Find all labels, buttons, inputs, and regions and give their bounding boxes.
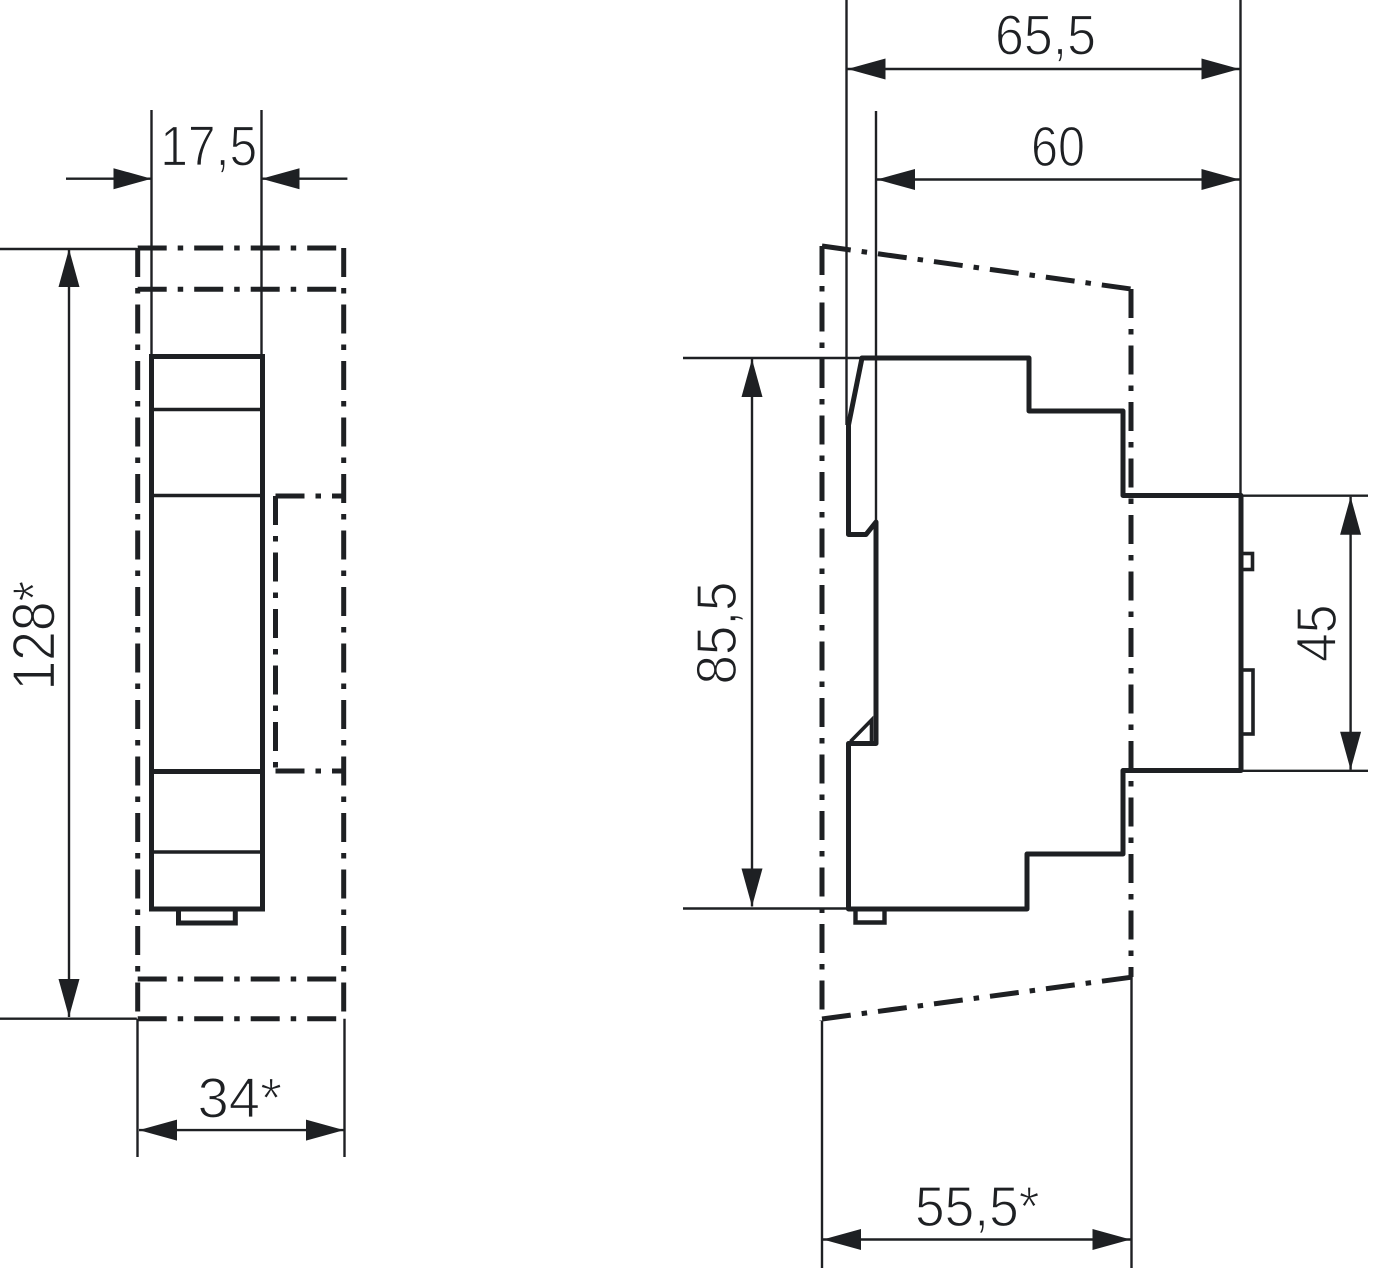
svg-text:55,5*: 55,5* [915,1175,1040,1239]
svg-text:34*: 34* [198,1067,283,1131]
svg-text:65,5: 65,5 [995,4,1096,68]
svg-text:85,5: 85,5 [685,582,749,685]
svg-text:45: 45 [1285,605,1349,663]
svg-text:60: 60 [1031,115,1085,179]
svg-text:128*: 128* [0,581,67,691]
svg-text:17,5: 17,5 [160,114,257,178]
